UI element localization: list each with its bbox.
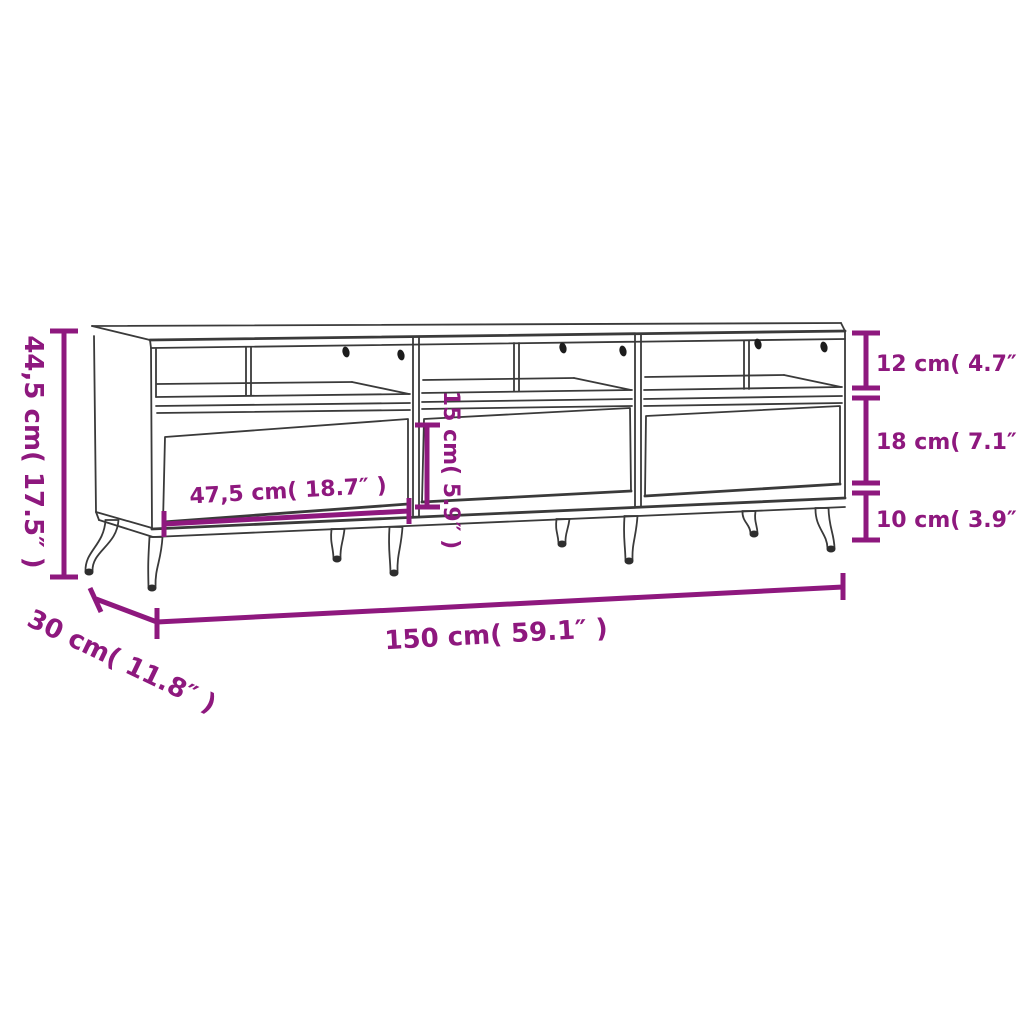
leg-back-right	[742, 511, 757, 533]
dimension-height-label: 44,5 cm( 17.5″ )	[18, 335, 48, 568]
cable-hole	[341, 346, 350, 358]
cable-hole	[558, 342, 567, 354]
leg-foot	[558, 541, 567, 548]
dimension-height: 44,5 cm( 17.5″ )	[18, 331, 78, 577]
leg-front-mid-left	[389, 527, 403, 572]
leg-back-mid-right	[556, 519, 569, 543]
leg-foot	[390, 570, 399, 577]
cabinet-carcass	[152, 331, 845, 537]
dimension-annotations: 44,5 cm( 17.5″ ) 12 cm( 4.7″ ) 18 cm( 7.…	[18, 331, 1024, 720]
leg-foot	[750, 531, 759, 538]
leg-back-left	[85, 520, 118, 571]
leg-foot	[625, 558, 634, 565]
cabinet-left-panel	[94, 336, 153, 537]
leg-front-right	[815, 508, 834, 548]
leg-back-mid-left	[331, 529, 344, 558]
dimension-width: 150 cm( 59.1″ )	[157, 573, 843, 656]
leg-front-left	[148, 537, 162, 587]
cabinet-top-slab	[92, 323, 845, 348]
leg-foot	[827, 546, 836, 553]
dimension-leg-height: 10 cm( 3.9″ )	[852, 493, 1024, 540]
dimension-drawer-height-label: 18 cm( 7.1″ )	[876, 430, 1024, 455]
leg-foot	[85, 569, 94, 576]
cabinet-compartments	[156, 338, 842, 413]
cable-hole	[819, 341, 828, 353]
dimension-drawer-height: 18 cm( 7.1″ )	[852, 398, 1024, 483]
dimension-width-label: 150 cm( 59.1″ )	[384, 614, 609, 656]
cable-hole	[618, 345, 627, 357]
leg-foot	[148, 585, 157, 592]
cable-hole	[396, 349, 405, 361]
dimension-niche-height-label: 15 cm( 5.9″ )	[438, 391, 463, 549]
dimension-drawer-width-label: 47,5 cm( 18.7″ )	[189, 474, 388, 510]
drawer-right	[645, 406, 840, 496]
dimension-depth: 30 cm( 11.8″ )	[22, 588, 220, 720]
leg-foot	[333, 556, 342, 563]
dimension-compartment-height: 12 cm( 4.7″ )	[852, 333, 1024, 388]
leg-front-mid-right	[624, 516, 638, 560]
dimension-diagram-canvas: 44,5 cm( 17.5″ ) 12 cm( 4.7″ ) 18 cm( 7.…	[0, 0, 1024, 1024]
dimension-leg-height-label: 10 cm( 3.9″ )	[876, 508, 1024, 533]
dimension-diagram: 44,5 cm( 17.5″ ) 12 cm( 4.7″ ) 18 cm( 7.…	[0, 0, 1024, 1024]
dimension-compartment-height-label: 12 cm( 4.7″ )	[876, 352, 1024, 377]
cabinet-drawing	[85, 323, 846, 592]
